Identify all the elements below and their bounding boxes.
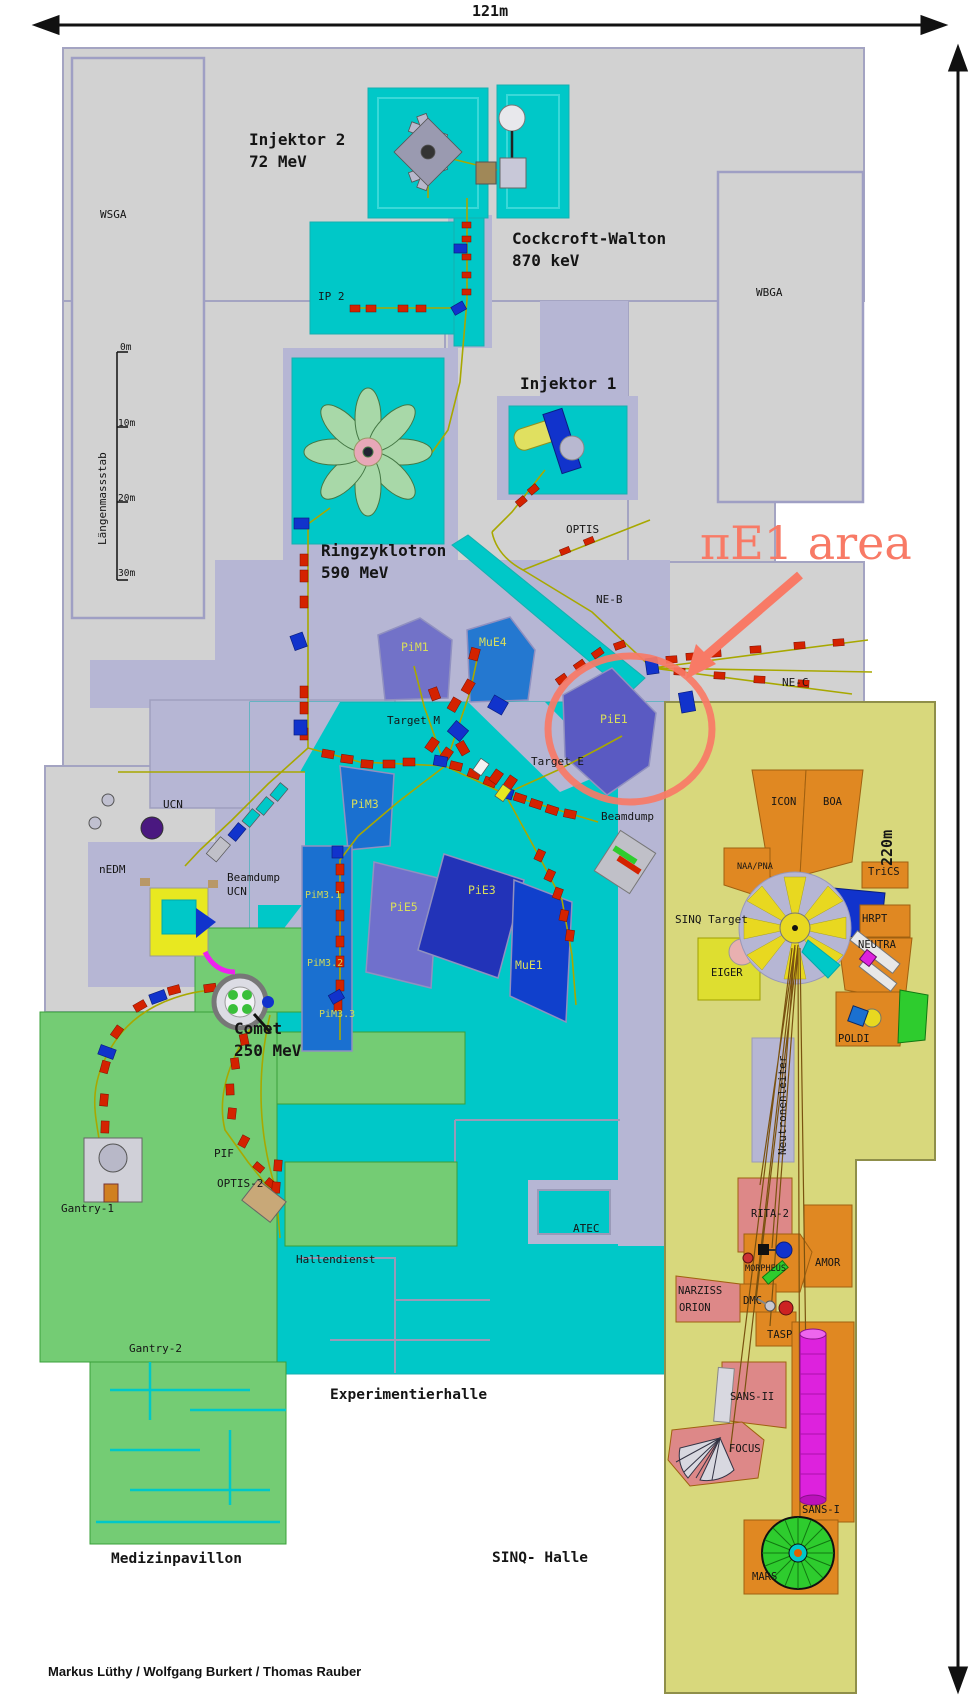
label-pim1: PiM1 [401,640,429,655]
facility-map-graphics [0,0,976,1704]
label-beamdump-ucn: Beamdump UCN [227,871,280,900]
label-morpheus: MORPHEUS [745,1264,786,1275]
label-mue1: MuE1 [515,958,543,973]
label-mue4: MuE4 [479,635,507,650]
label-neutronenleiter: Neutronenleiter [776,1056,790,1155]
label-ucn: UCN [163,798,183,812]
label-pie5: PiE5 [390,900,418,915]
label-atec: ATEC [573,1222,600,1236]
label-icon: ICON [771,796,796,810]
label-boa: BOA [823,796,842,810]
label-gantry-2: Gantry-2 [129,1342,182,1356]
label-medizinpavillon: Medizinpavillon [111,1550,242,1569]
label-amor: AMOR [815,1257,840,1271]
label-hallendienst: Hallendienst [296,1253,375,1267]
psi-facility-map: Längenmassstab0m10m20m30mInjektor 2 72 M… [0,0,976,1704]
label-focus: FOCUS [729,1443,761,1457]
label-ne-c: NE-C [782,676,809,690]
label-pim3-2: PiM3.2 [307,957,343,970]
label-orion: ORION [679,1302,711,1316]
label-rita-2: RITA-2 [751,1208,789,1222]
label-injektor1: Injektor 1 [520,373,616,395]
label-pim3: PiM3 [351,797,379,812]
label-pie3: PiE3 [468,883,496,898]
label-wbga: WBGA [756,286,783,300]
label-naa-pna: NAA/PNA [737,862,773,873]
label-hrpt: HRPT [862,913,887,927]
label-tick-0m: 0m [120,342,131,354]
gantry1-graphic [84,1138,142,1202]
label-tick-10m: 10m [118,418,135,430]
label-pie1: PiE1 [600,712,628,727]
label-comet: Comet 250 MeV [234,1018,301,1061]
label-target-m: Target M [387,714,440,728]
pie1-area-annotation: πE1 area [700,516,912,570]
label-ruler-title: Längenmassstab [96,452,110,545]
sans1-detector-graphic [800,1329,826,1505]
label-neutra: NEUTRA [858,939,896,953]
label-cockcroft-walton: Cockcroft-Walton 870 keV [512,228,666,271]
label-sinq-target: SINQ Target [675,913,748,927]
label-beamdump: Beamdump [601,810,654,824]
label-pim3-1: PiM3.1 [305,889,341,902]
label-optis: OPTIS [566,523,599,537]
label-ringzyklotron: Ringzyklotron 590 MeV [321,540,446,583]
label-sans-ii: SANS-II [730,1391,774,1405]
label-ip2: IP 2 [318,290,345,304]
label-optis-2: OPTIS-2 [217,1177,263,1191]
label-ne-b: NE-B [596,593,623,607]
label-tick-20m: 20m [118,493,135,505]
label-sans-i: SANS-I [802,1504,840,1518]
label-gantry-1: Gantry-1 [61,1202,114,1216]
label-target-e: Target E [531,755,584,769]
label-trics: TriCS [868,866,900,880]
label-sinq-halle: SINQ- Halle [492,1549,588,1568]
label-poldi: POLDI [838,1033,870,1047]
label-mars: MARS [752,1571,777,1585]
label-pif: PIF [214,1147,234,1161]
label-tick-30m: 30m [118,568,135,580]
height-scale-label: 220m [878,830,898,866]
label-tasp: TASP [767,1329,792,1343]
credits-line: Markus Lüthy / Wolfgang Burkert / Thomas… [48,1664,361,1679]
label-experimentierhalle: Experimentierhalle [330,1386,487,1405]
ring-cyclotron-graphic [304,388,432,516]
label-wsga: WSGA [100,208,127,222]
label-narziss: NARZISS [678,1285,722,1299]
label-pim3-3: PiM3.3 [319,1008,355,1021]
label-dmc: DMC [743,1295,762,1309]
width-scale-label: 121m [472,2,508,22]
label-nedm: nEDM [99,863,126,877]
label-eiger: EIGER [711,967,743,981]
label-injektor2: Injektor 2 72 MeV [249,129,345,172]
